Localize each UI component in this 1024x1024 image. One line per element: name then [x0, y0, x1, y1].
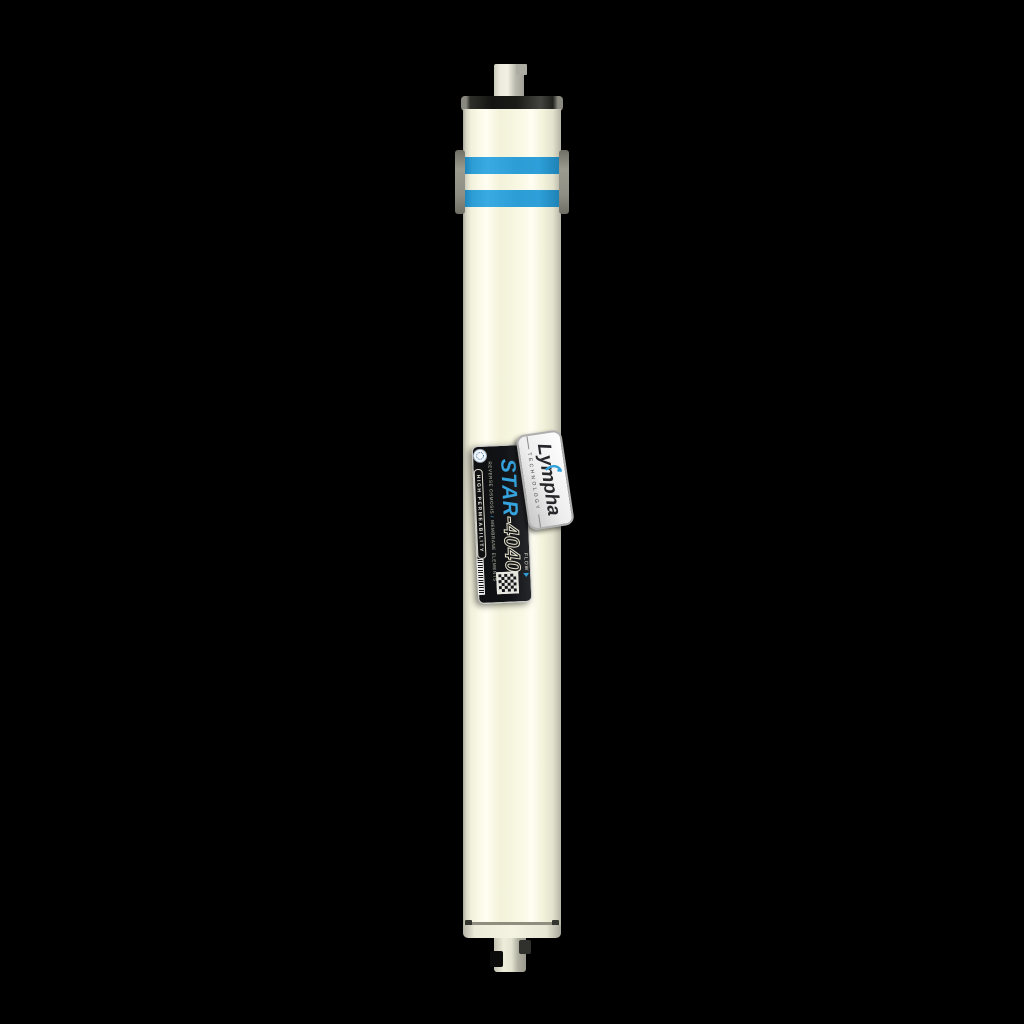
flow-indicator: FLOW [522, 553, 529, 578]
product-label: STAR-4040 REVERSE OSMOSIS / MEMBRANE ELE… [472, 444, 533, 604]
product-photo-ro-membrane: STAR-4040 REVERSE OSMOSIS / MEMBRANE ELE… [0, 0, 1024, 1024]
blue-stripe-lower [463, 190, 561, 207]
model-name-star: STAR [496, 458, 521, 517]
subtitle-divider: / [490, 516, 495, 518]
tagline-rule-right [538, 514, 541, 527]
model-name: STAR-4040 [495, 458, 524, 573]
tagline-rule-left [527, 437, 530, 450]
swoosh-icon [545, 460, 563, 474]
subtitle-left: REVERSE OSMOSIS [487, 461, 494, 514]
certification-badge-icon [473, 449, 488, 464]
barcode-icon [477, 559, 486, 595]
certification-badge-ring [476, 452, 484, 460]
bottom-stub-shadow-left [490, 951, 503, 967]
qr-code-icon [496, 571, 519, 594]
label-rotor: STAR-4040 REVERSE OSMOSIS / MEMBRANE ELE… [472, 444, 533, 604]
end-cap-bottom [463, 925, 561, 938]
bottom-stub-shadow-right [519, 940, 531, 954]
flow-label: FLOW [522, 553, 529, 572]
permeate-tube-top-collar [516, 64, 527, 75]
blue-stripe-upper [463, 157, 561, 174]
flow-arrow-icon [523, 573, 529, 577]
brand-plate: Lympha TECHNOLOGY [515, 429, 575, 531]
brine-seal-left [455, 150, 465, 214]
brine-seal-right [559, 150, 569, 214]
model-number-4040: -4040 [499, 516, 524, 573]
feature-badge: HIGH PERMEABILITY [474, 469, 487, 559]
